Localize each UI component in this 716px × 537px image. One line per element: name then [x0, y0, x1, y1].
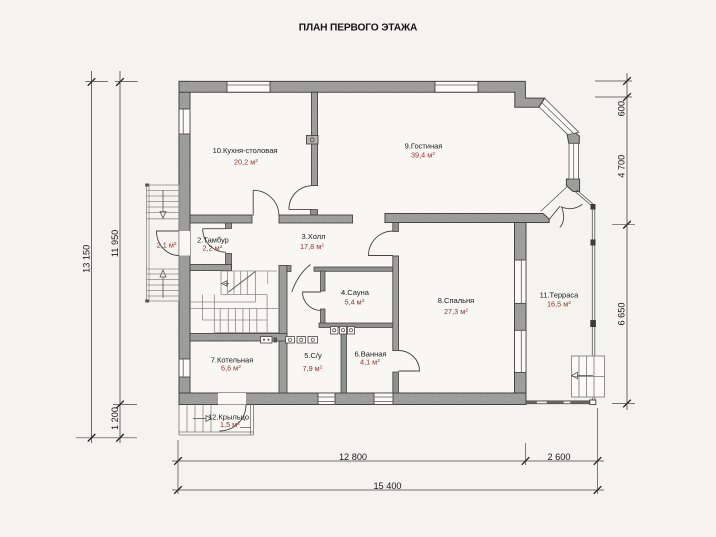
svg-text:600: 600 [616, 101, 626, 116]
svg-text:2 600: 2 600 [548, 452, 571, 462]
svg-text:1 200: 1 200 [110, 407, 120, 430]
svg-text:6,6 м2: 6,6 м2 [221, 364, 241, 373]
svg-text:4,1 м2: 4,1 м2 [360, 358, 380, 367]
svg-text:ПЛАН ПЕРВОГО ЭТАЖА: ПЛАН ПЕРВОГО ЭТАЖА [299, 23, 418, 34]
svg-text:4 700: 4 700 [616, 155, 626, 178]
svg-text:9.Гостиная: 9.Гостиная [405, 142, 443, 151]
svg-text:13 150: 13 150 [81, 245, 91, 273]
svg-text:12 800: 12 800 [339, 452, 367, 462]
svg-text:7,9 м2: 7,9 м2 [303, 364, 323, 373]
svg-text:4.Сауна: 4.Сауна [341, 288, 370, 297]
svg-text:5,4 м2: 5,4 м2 [345, 298, 365, 307]
svg-text:10.Кухня-столовая: 10.Кухня-столовая [213, 146, 278, 155]
svg-text:2,1 м2: 2,1 м2 [157, 241, 177, 250]
svg-text:11 950: 11 950 [110, 230, 120, 257]
svg-text:39,4 м2: 39,4 м2 [411, 151, 435, 160]
svg-text:11.Терраса: 11.Терраса [540, 291, 579, 300]
svg-text:6 650: 6 650 [616, 303, 626, 326]
svg-text:8.Спальня: 8.Спальня [438, 296, 474, 305]
svg-text:1,5 м2: 1,5 м2 [220, 420, 240, 429]
svg-text:5.С/у: 5.С/у [304, 351, 322, 360]
svg-text:20,2 м2: 20,2 м2 [234, 158, 258, 167]
svg-text:16,5 м2: 16,5 м2 [547, 300, 571, 309]
svg-text:27,3 м2: 27,3 м2 [444, 307, 468, 316]
svg-text:3.Холл: 3.Холл [302, 232, 326, 241]
svg-text:2,2 м2: 2,2 м2 [203, 244, 223, 253]
svg-text:17,8 м2: 17,8 м2 [300, 242, 324, 251]
svg-text:15 400: 15 400 [373, 481, 401, 491]
